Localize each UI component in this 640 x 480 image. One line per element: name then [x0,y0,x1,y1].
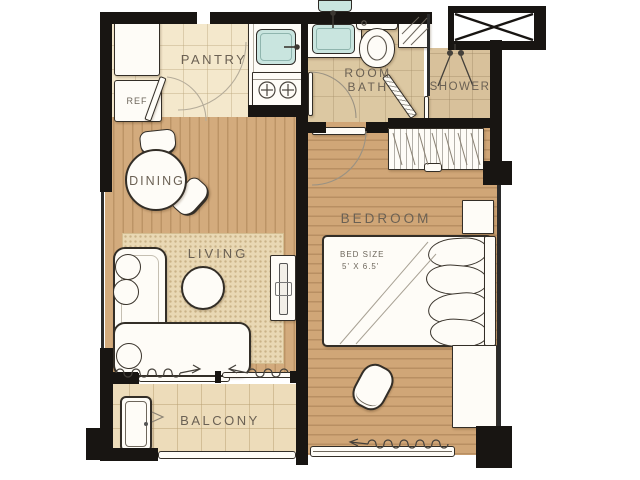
kitchen-bottom-wall [248,105,308,117]
right-wall-block [483,161,512,185]
living-balcony-wall [100,372,138,384]
balcony-label: BALCONY [180,413,260,428]
bedroom-window [310,446,455,457]
window-glass-line [313,451,452,452]
balcony-railing [158,451,296,459]
kitchen-sink-basin [260,33,292,61]
stove-panel-line [253,79,301,80]
storage-closet [114,18,160,76]
bed-size-label-line1: BED SIZE [340,250,400,259]
slider-jamb [215,371,221,383]
left-wall-upper [100,12,112,192]
living-bedroom-wall [296,105,308,465]
nightstand [462,200,494,234]
sofa-cushion [116,343,142,369]
bath-sink-basin [316,28,351,50]
coffee-table [181,266,225,310]
bottom-right-block [476,426,512,468]
bath-label-line1: ROOM [330,66,406,80]
washing-machine [120,396,152,452]
dining-label: DINING [120,174,194,188]
cropped-basin-top [318,0,352,12]
bedroom-top-wall [366,122,388,133]
refrigerator-label: REF [115,81,159,121]
washer-door-knob [144,422,148,426]
top-wall [100,12,197,24]
bath-door-panel [308,72,313,116]
stove [252,72,302,106]
living-label: LIVING [180,246,256,261]
refrigerator: REF [114,80,162,122]
shower-right-wall [490,40,502,170]
kitchen-sink [256,29,296,65]
sofa-cushion [115,254,141,280]
pantry-label: PANTRY [168,52,260,67]
headboard [484,236,496,346]
bedroom-label: BEDROOM [338,211,434,226]
wardrobe-top-wall [388,118,497,128]
counter-bath-wall [301,14,308,122]
shaft-interior [454,13,534,41]
toilet-bowl [359,28,395,68]
wardrobe [388,128,484,170]
shower-label: SHOWER [424,81,496,93]
floor-plan: REF [0,0,640,480]
wardrobe-handle [424,163,442,172]
desk [452,345,497,428]
bed-size-label-line2: 5' X 6.5' [342,262,402,271]
sofa-cushion [113,279,139,305]
left-window-wall [101,192,104,348]
bedroom-top-wall [308,122,326,133]
tv-stand [275,282,292,296]
sliding-door-panel [222,372,296,378]
right-window-wall [497,185,501,428]
bath-sink [312,24,355,54]
balcony-bottom-wall [100,448,158,461]
bath-label-line2: BATH [330,80,406,94]
tv-console [270,255,296,321]
top-wall [210,12,432,24]
